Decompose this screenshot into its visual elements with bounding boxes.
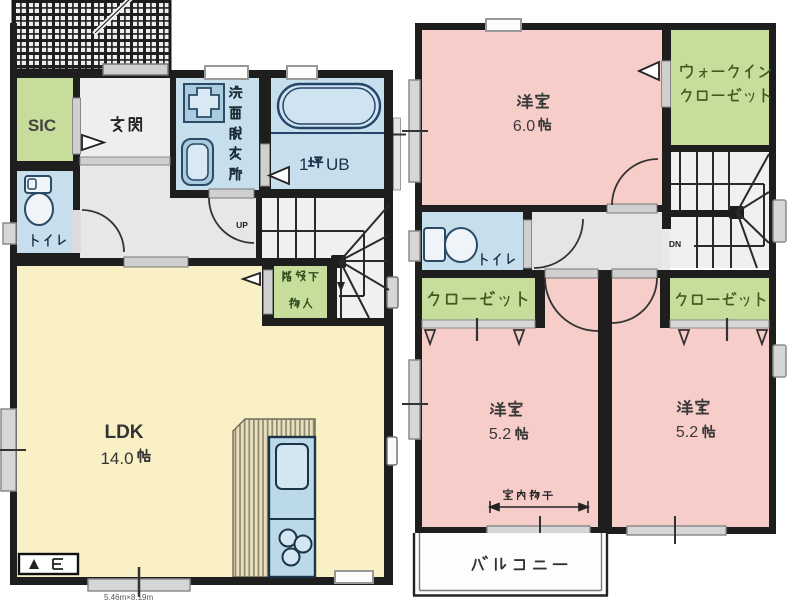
svg-text:SIC: SIC [28,116,56,135]
svg-text:1: 1 [299,155,308,174]
svg-text:6.0: 6.0 [513,118,535,135]
svg-text:DN: DN [669,239,681,249]
svg-text:14.0: 14.0 [100,449,133,468]
svg-text:UP: UP [236,220,248,230]
svg-text:5.2: 5.2 [489,426,511,443]
svg-text:5.46m×8.19m: 5.46m×8.19m [104,593,153,602]
svg-text:5.2: 5.2 [676,424,698,441]
svg-text:LDK: LDK [104,422,143,443]
svg-text:UB: UB [326,155,350,174]
